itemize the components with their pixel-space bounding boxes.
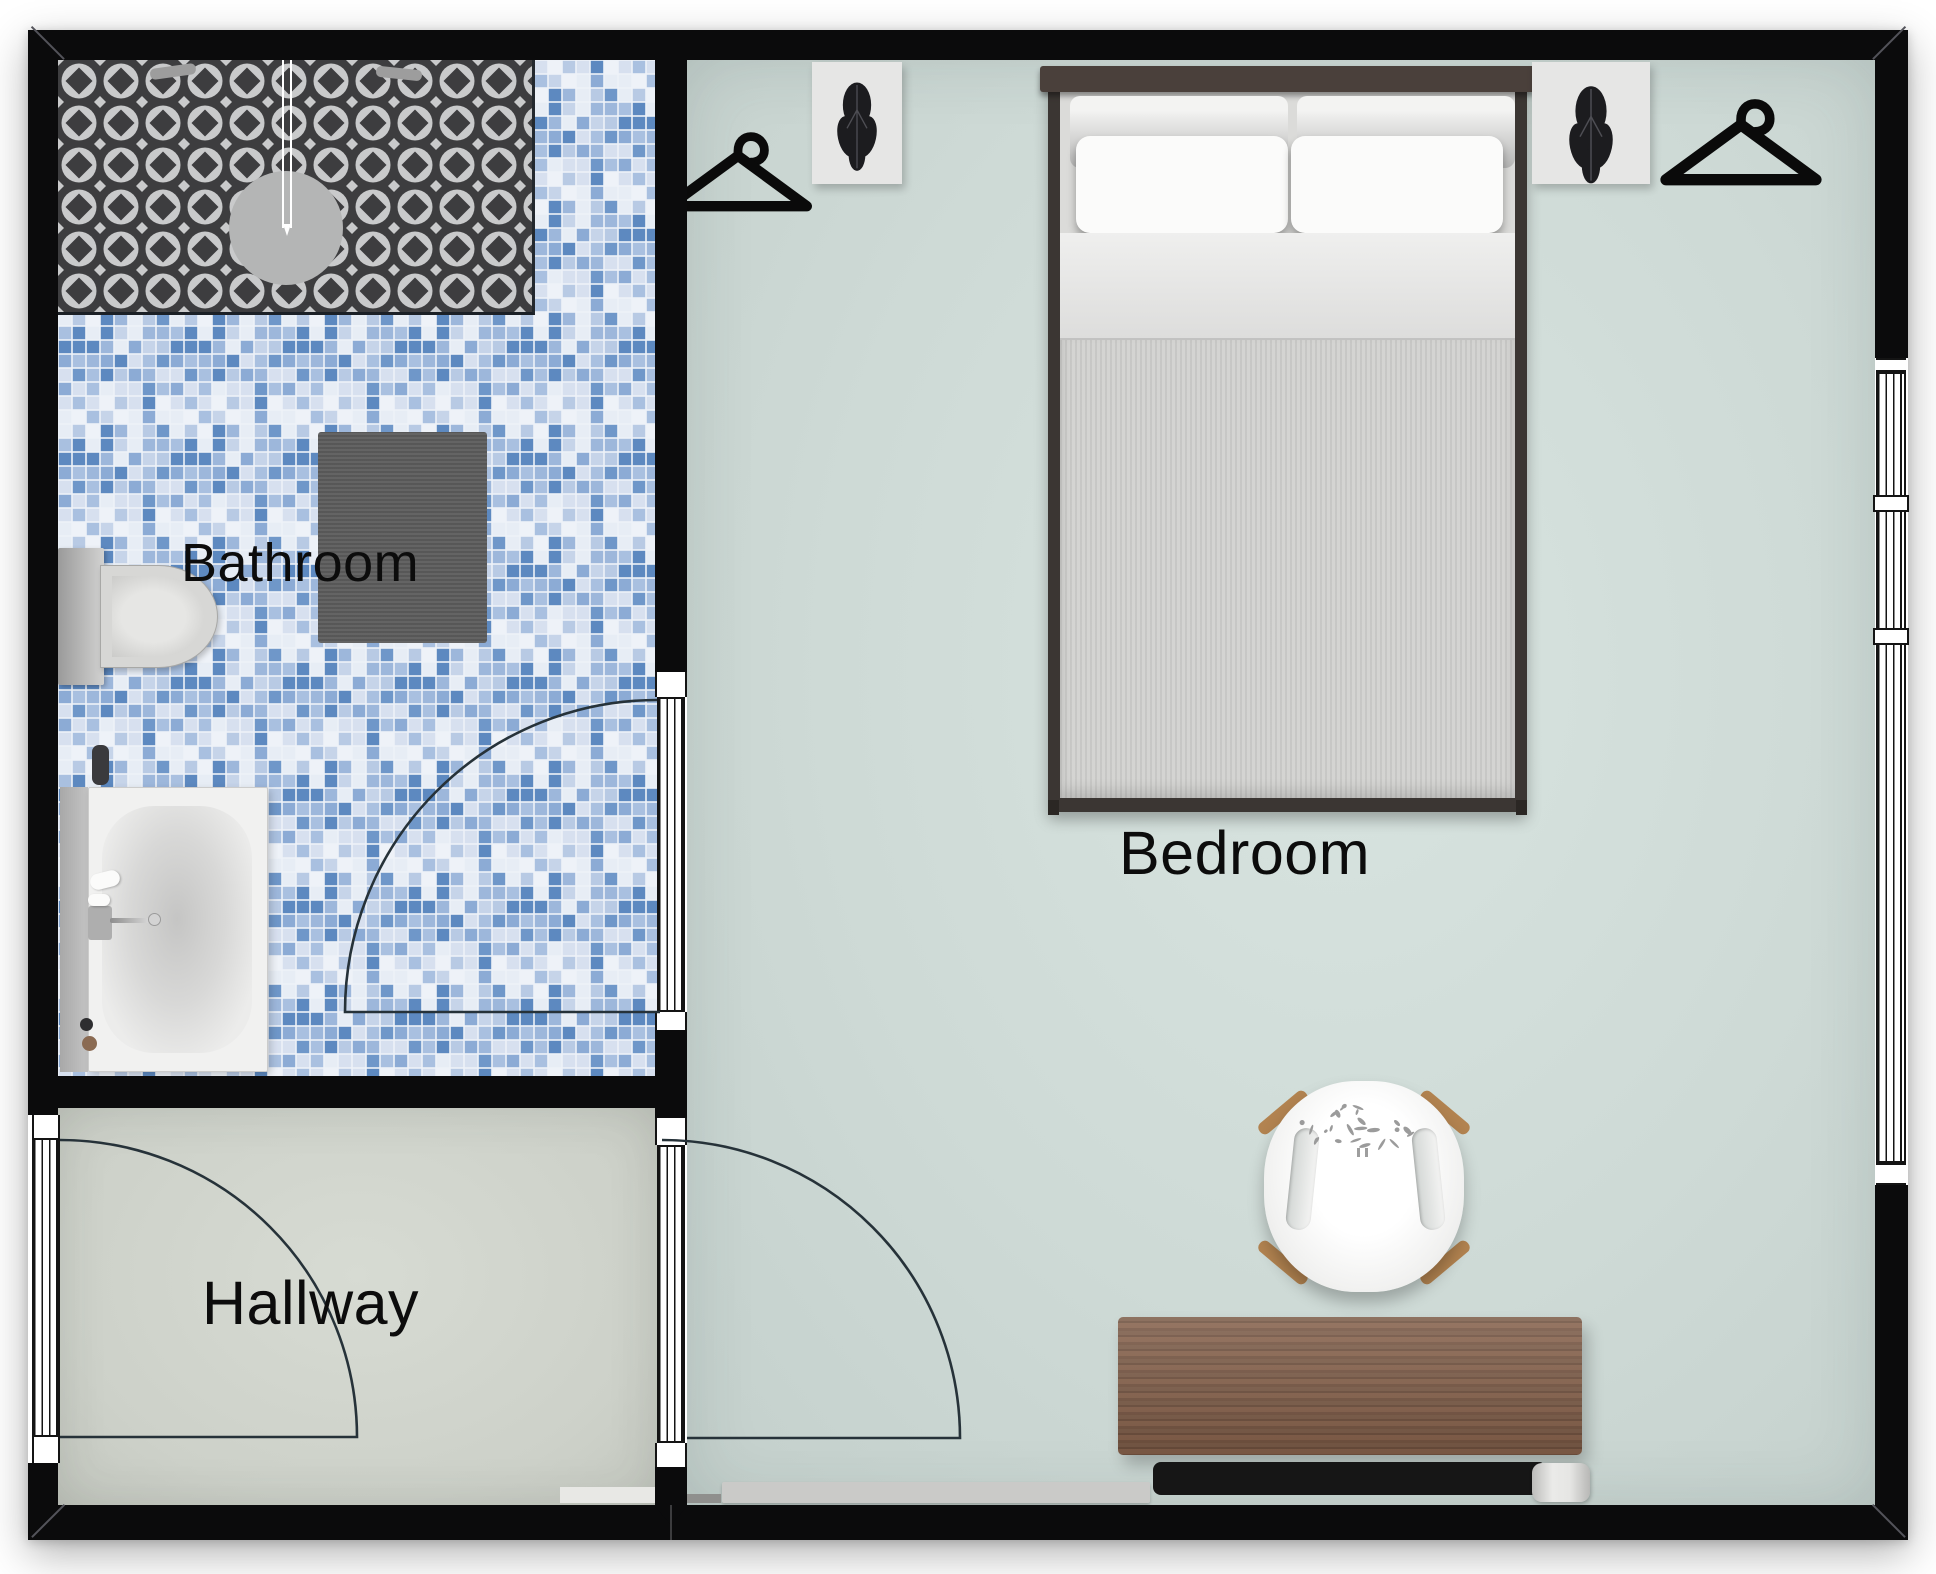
entrance-door-jamb	[32, 1437, 60, 1463]
bedroom-label: Bedroom	[1119, 818, 1370, 888]
shower-pipe-tip	[283, 224, 291, 236]
bed-pillow	[1076, 136, 1288, 233]
bed-duvet	[1060, 340, 1515, 798]
bathtub-basin	[102, 806, 252, 1053]
hanger-icon	[1642, 76, 1840, 198]
bedroom-door-jamb	[655, 1118, 687, 1145]
soap-bar	[88, 894, 110, 906]
floorplan-canvas: Bathroom Hallway Bedroom	[0, 0, 1936, 1574]
toilet-tank	[58, 548, 104, 685]
wall-right-lower	[1875, 1185, 1908, 1540]
window-jamb	[1876, 358, 1906, 372]
drain-knob	[82, 1036, 97, 1051]
window-jamb	[1876, 1163, 1906, 1185]
bed-foot	[1516, 800, 1527, 815]
hallway-doormat	[560, 1487, 655, 1503]
bathroom-door-jamb	[655, 672, 687, 697]
window-mullion	[1873, 495, 1909, 512]
bed-foot	[1048, 800, 1059, 815]
bathroom-label: Bathroom	[181, 532, 419, 594]
window-right	[1876, 372, 1906, 1163]
toiletry-bottle	[92, 745, 109, 785]
shower-pipe	[282, 60, 292, 228]
wall-divider-bathroom-hallway	[28, 1076, 687, 1108]
bed-headboard	[1040, 66, 1535, 92]
wall-left-upper	[28, 30, 58, 1115]
bathtub-spout	[110, 918, 152, 923]
bed-sheet-band	[1060, 233, 1515, 340]
window-mullion	[1873, 628, 1909, 645]
wall-seam	[670, 1505, 672, 1540]
bedroom-door-leaf	[657, 1145, 685, 1443]
chair-mark	[1365, 1148, 1368, 1157]
desk	[1118, 1317, 1582, 1455]
wall-partition-upper	[655, 60, 687, 672]
bathroom-door-jamb	[655, 1012, 687, 1030]
wall-left-lower	[28, 1463, 58, 1540]
bedroom-door-jamb	[655, 1443, 687, 1467]
plant-icon	[832, 70, 882, 180]
entrance-door-jamb	[32, 1115, 60, 1138]
hallway-label: Hallway	[202, 1268, 419, 1338]
bed-pillow	[1291, 136, 1503, 233]
bathtub-knob	[148, 913, 161, 926]
wall-shelf	[722, 1482, 1150, 1503]
wall-partition-mid	[655, 1030, 687, 1118]
wall-right-upper	[1875, 30, 1908, 358]
bathtub-faucet	[88, 906, 112, 940]
wall-top	[28, 30, 1908, 60]
chair-mark	[1357, 1148, 1360, 1157]
bathroom-door-leaf	[657, 697, 685, 1012]
wall-bench	[1153, 1462, 1543, 1495]
entrance-door-leaf	[32, 1138, 60, 1437]
drain-knob	[80, 1018, 93, 1031]
chair-backrest-pattern	[1294, 1096, 1434, 1156]
waste-bin	[1532, 1463, 1590, 1502]
plant-icon	[1560, 78, 1622, 188]
wall-bottom	[28, 1505, 1908, 1540]
